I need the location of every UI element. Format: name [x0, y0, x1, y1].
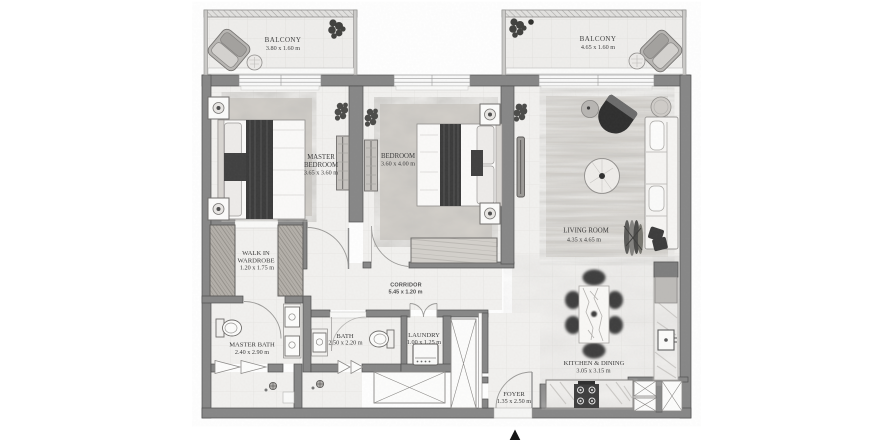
svg-text:KITCHEN & DINING: KITCHEN & DINING [564, 360, 625, 367]
svg-text:MASTER: MASTER [307, 154, 335, 161]
svg-text:BEDROOM: BEDROOM [381, 153, 415, 160]
svg-text:LAUNDRY: LAUNDRY [408, 332, 440, 339]
svg-text:MASTER BATH: MASTER BATH [229, 342, 275, 349]
svg-text:1.20 x 1.75 m: 1.20 x 1.75 m [240, 265, 274, 272]
svg-text:WARDROBE: WARDROBE [238, 258, 275, 265]
svg-text:CORRIDOR: CORRIDOR [390, 283, 422, 289]
svg-text:1.00 x 1.25 m: 1.00 x 1.25 m [407, 339, 441, 346]
svg-text:LIVING ROOM: LIVING ROOM [563, 228, 609, 235]
svg-text:2.40 x 2.90 m: 2.40 x 2.90 m [235, 349, 269, 356]
svg-text:WALK IN: WALK IN [242, 250, 270, 257]
svg-text:2.50 x 2.20 m: 2.50 x 2.20 m [328, 340, 362, 347]
svg-text:3.65 x 3.60 m: 3.65 x 3.60 m [304, 170, 338, 177]
svg-text:BEDROOM: BEDROOM [304, 162, 338, 169]
svg-text:FOYER: FOYER [503, 391, 525, 398]
svg-text:3.60 x 4.00 m: 3.60 x 4.00 m [381, 161, 415, 168]
svg-text:5.45 x 1.20 m: 5.45 x 1.20 m [389, 290, 423, 296]
svg-text:1.35 x 2.50 m: 1.35 x 2.50 m [497, 398, 531, 405]
svg-text:4.35 x 4.65 m: 4.35 x 4.65 m [567, 237, 601, 244]
svg-text:3.05 x 3.15 m: 3.05 x 3.15 m [576, 368, 610, 375]
